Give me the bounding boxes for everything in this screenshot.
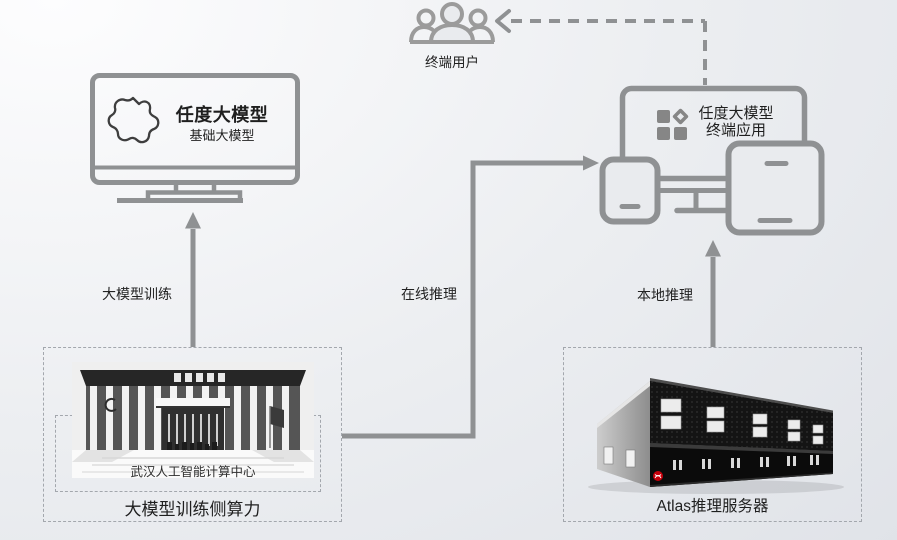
computing-center-caption: 武汉人工智能计算中心 — [60, 461, 326, 480]
rendu-blob-logo-icon — [109, 98, 159, 142]
phone-icon — [603, 160, 658, 222]
diagram-lineart — [0, 0, 897, 540]
base-model-title: 任度大模型 — [167, 104, 277, 127]
online-inference-arrow — [342, 156, 599, 437]
base-model-label-group: 任度大模型 基础大模型 — [167, 104, 277, 145]
local-inference-label: 本地推理 — [637, 285, 693, 305]
atlas-server-illustration — [588, 378, 844, 494]
architecture-diagram: 终端用户 任度大模型 基础大模型 任度大模型 终端应用 大模型训练 在线推理 本… — [0, 0, 897, 540]
end-users-label: 终端用户 — [406, 51, 498, 71]
app-grid-icon — [657, 108, 689, 140]
end-users-icon — [410, 4, 494, 42]
terminal-app-line2: 终端应用 — [690, 122, 782, 139]
local-inference-arrow — [705, 240, 721, 347]
atlas-server-label: Atlas推理服务器 — [563, 494, 862, 516]
training-arrow — [185, 212, 201, 347]
online-inference-label: 在线推理 — [401, 284, 457, 304]
base-model-subtitle: 基础大模型 — [167, 128, 277, 145]
huawei-logo — [653, 471, 663, 481]
training-arrow-label: 大模型训练 — [102, 284, 172, 304]
terminal-app-line1: 任度大模型 — [690, 105, 782, 122]
training-compute-label: 大模型训练侧算力 — [43, 495, 342, 520]
feedback-dashed-arrow — [497, 11, 705, 85]
terminal-app-label-group: 任度大模型 终端应用 — [690, 105, 782, 139]
